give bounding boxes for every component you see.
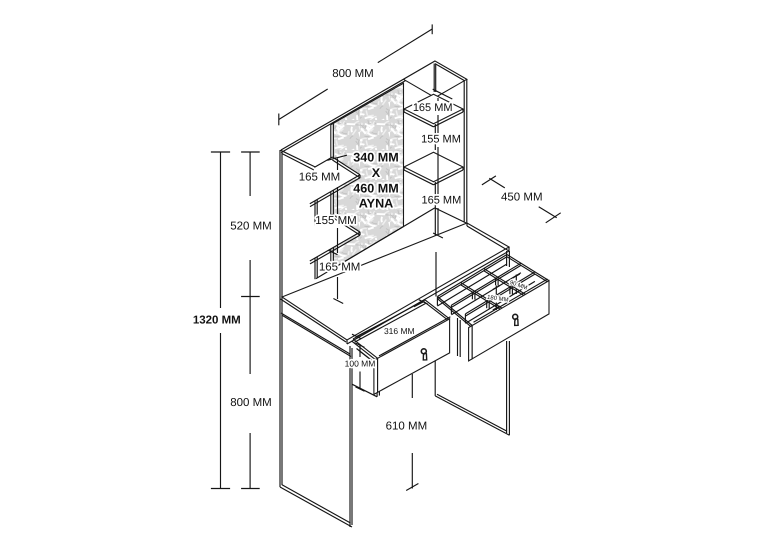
svg-text:155 MM: 155 MM — [421, 133, 461, 145]
svg-text:460 MM: 460 MM — [353, 181, 399, 195]
svg-text:316 MM: 316 MM — [384, 326, 415, 336]
svg-text:450 MM: 450 MM — [501, 191, 543, 203]
svg-text:165 MM: 165 MM — [422, 195, 462, 207]
svg-text:X: X — [372, 166, 381, 180]
svg-text:610 MM: 610 MM — [386, 421, 428, 433]
svg-text:1320 MM: 1320 MM — [193, 315, 241, 327]
svg-text:100 MM: 100 MM — [345, 359, 376, 369]
svg-text:165 MM: 165 MM — [413, 102, 453, 114]
svg-text:800 MM: 800 MM — [332, 68, 374, 80]
svg-text:165 MM: 165 MM — [299, 172, 341, 184]
svg-text:155 MM: 155 MM — [315, 215, 357, 227]
svg-text:AYNA: AYNA — [359, 196, 394, 210]
svg-text:340 MM: 340 MM — [353, 150, 399, 164]
svg-text:800 MM: 800 MM — [230, 397, 272, 409]
svg-text:165 MM: 165 MM — [319, 261, 361, 273]
svg-text:520 MM: 520 MM — [230, 220, 272, 232]
